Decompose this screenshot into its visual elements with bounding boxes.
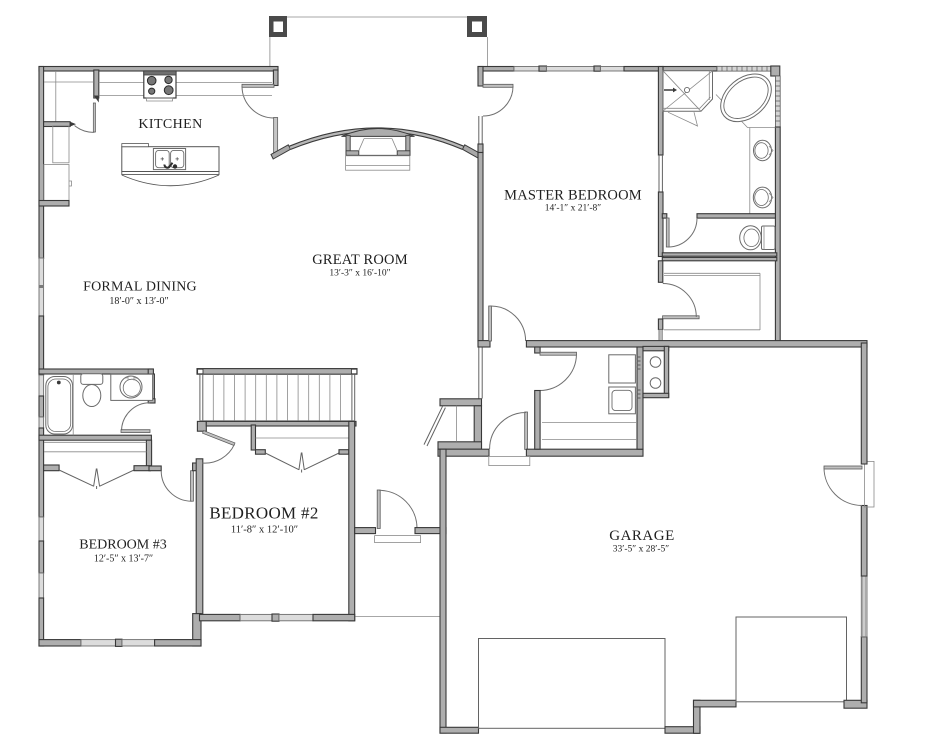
svg-text:14′-1″ x 21′-8″: 14′-1″ x 21′-8″: [545, 204, 601, 214]
svg-text:12′-5″ x 13′-7″: 12′-5″ x 13′-7″: [94, 554, 153, 565]
svg-text:BEDROOM #2: BEDROOM #2: [209, 504, 318, 523]
svg-text:GARAGE: GARAGE: [609, 528, 675, 544]
svg-text:13′-3″ x 16′-10″: 13′-3″ x 16′-10″: [329, 269, 390, 279]
svg-text:MASTER BEDROOM: MASTER BEDROOM: [504, 188, 642, 204]
svg-text:FORMAL DINING: FORMAL DINING: [83, 280, 197, 295]
svg-text:KITCHEN: KITCHEN: [138, 117, 202, 132]
svg-text:18′-0″ x 13′-0″: 18′-0″ x 13′-0″: [109, 296, 168, 307]
svg-text:33′-5″ x 28′-5″: 33′-5″ x 28′-5″: [613, 545, 669, 555]
svg-text:BEDROOM #3: BEDROOM #3: [79, 538, 167, 553]
svg-text:11′-8″ x 12′-10″: 11′-8″ x 12′-10″: [231, 525, 298, 536]
svg-text:GREAT ROOM: GREAT ROOM: [312, 252, 408, 268]
